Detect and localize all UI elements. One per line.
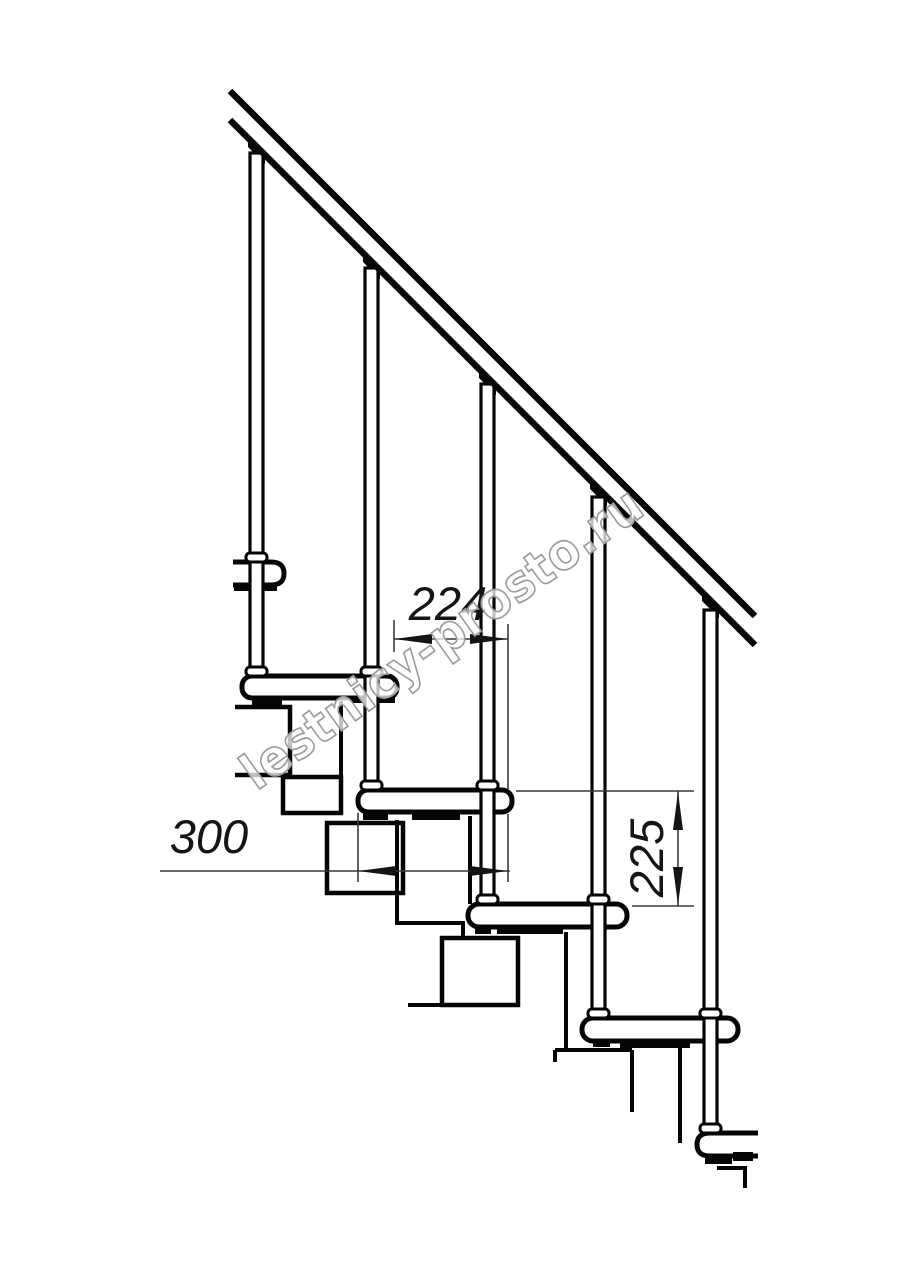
staircase-drawing-svg: 224 300 225 lestnicy-prosto.ru [0,0,914,1280]
baluster-2-collar-bottom [361,781,382,790]
baluster-4-collar-top [588,895,609,904]
baluster-5 [700,592,721,1133]
baluster-5-post [704,610,717,1133]
module-box-3 [442,938,518,1005]
baluster-1-collar-bottom [246,667,267,676]
baluster-3-collar-bottom [477,895,498,904]
dim-depth-value: 300 [170,810,248,863]
baluster-5-collar-top [700,1009,721,1018]
baluster-3-collar-top [477,781,498,790]
baluster-1 [246,138,267,676]
baluster-4-collar-bottom [588,1009,609,1018]
baluster-4-post [592,497,605,1018]
module-connector-1 [283,777,341,813]
module-box-2 [327,823,403,893]
baluster-5-collar-bottom [700,1124,721,1133]
module-connector-2 [397,820,463,938]
dim-rise-arrow-top [673,792,683,830]
baluster-1-post [250,153,263,675]
baluster-1-collar-top [246,553,267,562]
staircase-drawing: 224 300 225 lestnicy-prosto.ru [0,0,914,1280]
module-cut-under-tread6 [717,1168,745,1188]
dim-rise-arrow-bottom [673,867,683,905]
dim-rise-value: 225 [620,818,673,898]
